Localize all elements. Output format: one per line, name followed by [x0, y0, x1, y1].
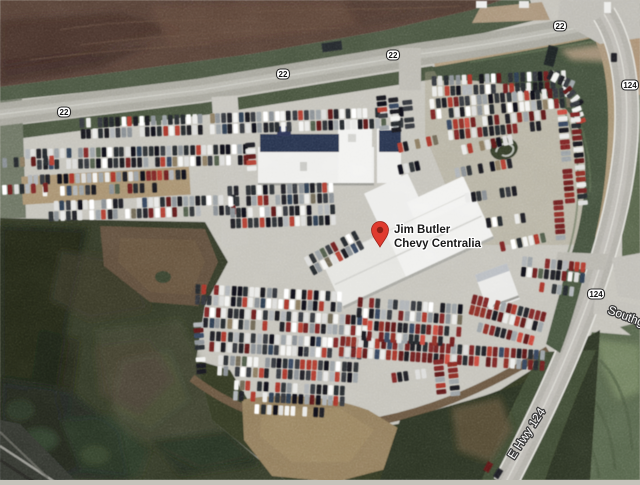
svg-text:22: 22: [389, 51, 398, 60]
svg-text:22: 22: [556, 22, 565, 31]
svg-text:124: 124: [589, 290, 603, 299]
svg-text:124: 124: [623, 81, 637, 90]
svg-text:Chevy Centralia: Chevy Centralia: [394, 238, 482, 250]
svg-text:Jim Butler: Jim Butler: [394, 224, 451, 236]
svg-text:22: 22: [279, 70, 288, 79]
svg-text:22: 22: [60, 108, 69, 117]
